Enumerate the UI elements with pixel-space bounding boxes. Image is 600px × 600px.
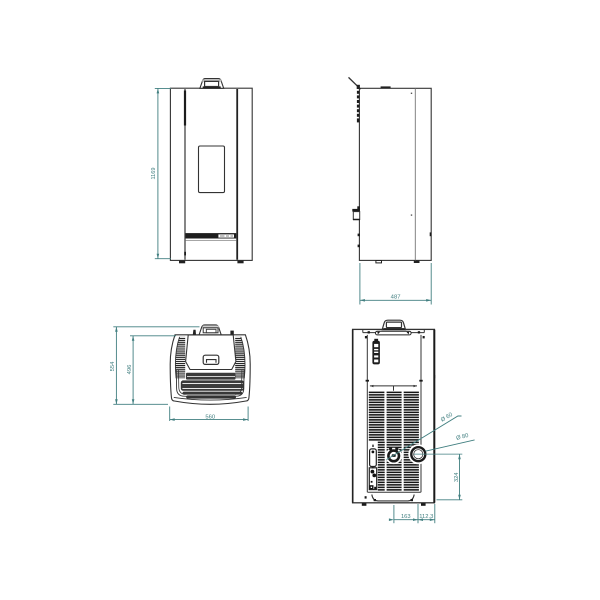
svg-text:Ø 60: Ø 60 [440,412,454,424]
svg-text:112.3: 112.3 [419,514,433,520]
svg-text:163: 163 [401,514,411,520]
svg-text:324: 324 [454,472,460,482]
svg-text:496: 496 [127,364,133,375]
svg-text:554: 554 [110,361,116,372]
svg-text:487: 487 [391,295,401,301]
svg-text:560: 560 [205,415,216,421]
svg-text:Ø 80: Ø 80 [456,433,470,442]
svg-text:1169: 1169 [151,167,157,179]
